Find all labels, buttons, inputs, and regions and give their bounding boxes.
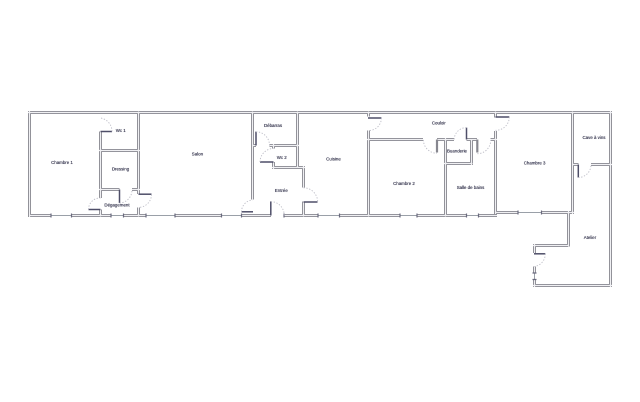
svg-text:Couloir: Couloir	[432, 120, 446, 125]
svg-text:Wc 1: Wc 1	[116, 128, 127, 133]
svg-text:Chambre 3: Chambre 3	[524, 160, 546, 165]
svg-text:Chambre 1: Chambre 1	[51, 160, 73, 165]
svg-text:Entrée: Entrée	[275, 188, 288, 193]
svg-text:Dégagement: Dégagement	[104, 203, 130, 208]
svg-text:Salle de bains: Salle de bains	[457, 185, 485, 190]
svg-text:Cuisine: Cuisine	[326, 157, 341, 162]
svg-text:Buanderie: Buanderie	[447, 149, 468, 154]
svg-text:Cave à vins: Cave à vins	[583, 135, 607, 140]
svg-text:Chambre 2: Chambre 2	[393, 181, 415, 186]
svg-text:Salon: Salon	[192, 152, 204, 157]
svg-text:Débarras: Débarras	[264, 123, 283, 128]
svg-text:Atelier: Atelier	[584, 235, 597, 240]
svg-text:Dressing: Dressing	[112, 167, 130, 172]
svg-text:Wc 2: Wc 2	[277, 155, 288, 160]
